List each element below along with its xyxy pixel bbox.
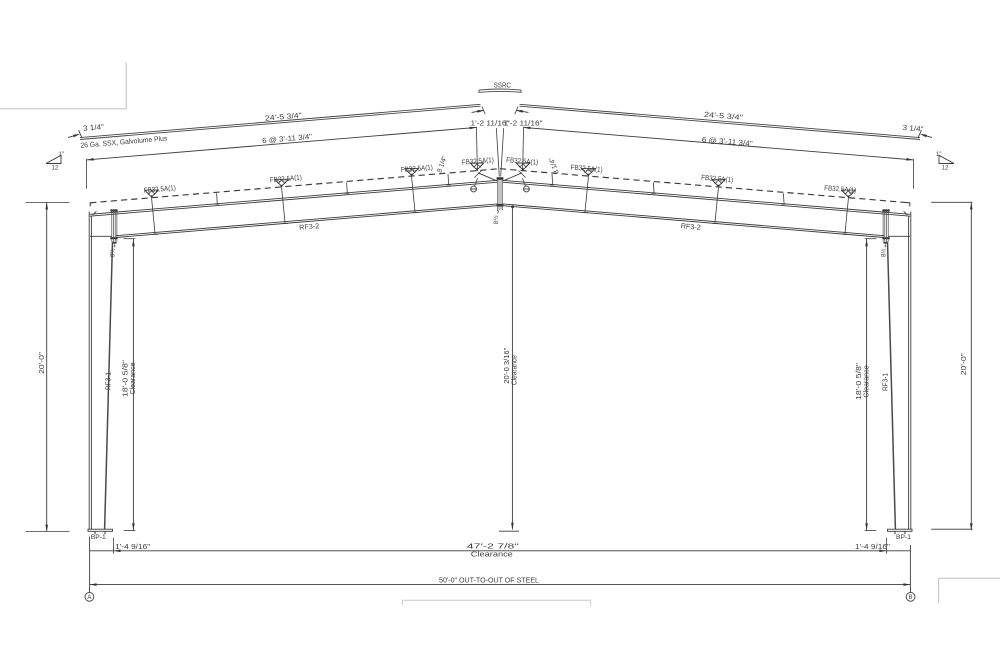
svg-text:8½: 8½ [881,249,888,257]
svg-text:RF3-2: RF3-2 [299,221,320,232]
svg-text:1'-2 11/16": 1'-2 11/16" [504,119,543,128]
svg-text:12: 12 [52,165,59,171]
svg-text:50'-0" OUT-TO-OUT OF STEEL: 50'-0" OUT-TO-OUT OF STEEL [439,575,539,584]
svg-text:Clearance: Clearance [510,355,519,385]
svg-text:20'-0": 20'-0" [959,353,968,376]
svg-text:1": 1" [936,152,941,158]
svg-text:3 1/4": 3 1/4" [902,123,924,134]
svg-text:1'-4 9/16": 1'-4 9/16" [855,542,891,551]
svg-text:12: 12 [942,165,949,171]
svg-text:3 1/4": 3 1/4" [83,122,105,133]
svg-text:Clearance: Clearance [861,366,870,398]
svg-text:RF3-1: RF3-1 [880,373,889,391]
svg-text:BP-1: BP-1 [91,534,106,541]
svg-text:SSRC: SSRC [494,80,511,89]
svg-text:Clearance: Clearance [128,363,137,395]
svg-text:B: B [909,595,913,601]
svg-text:RF3-1: RF3-1 [103,372,112,390]
svg-text:1": 1" [59,152,64,158]
svg-text:RF3-2: RF3-2 [680,221,701,232]
svg-text:Clearance: Clearance [471,549,513,558]
svg-text:8½: 8½ [109,249,116,257]
svg-text:A: A [87,595,91,601]
svg-text:1'-4 9/16": 1'-4 9/16" [115,542,151,551]
svg-text:BP-1: BP-1 [896,534,911,541]
svg-text:20'-0": 20'-0" [37,351,46,374]
svg-text:8½: 8½ [492,215,500,225]
